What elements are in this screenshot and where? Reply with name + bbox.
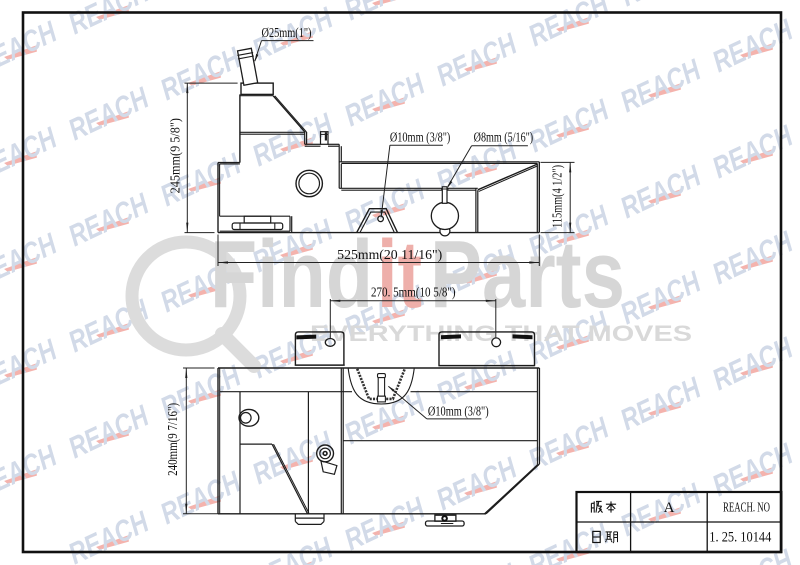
svg-text:245mm(9 5/8"): 245mm(9 5/8") bbox=[168, 118, 183, 193]
svg-text:Ø25mm(1"): Ø25mm(1") bbox=[262, 25, 312, 40]
svg-text:Find: Find bbox=[210, 221, 373, 328]
svg-text:it: it bbox=[377, 221, 422, 328]
svg-text:REACH. NO: REACH. NO bbox=[723, 500, 770, 515]
svg-text:115mm(4 1/2"): 115mm(4 1/2") bbox=[549, 165, 564, 228]
svg-text:270. 5mm(10 5/8"): 270. 5mm(10 5/8") bbox=[371, 284, 456, 299]
svg-text:Ø10mm (3/8"): Ø10mm (3/8") bbox=[428, 404, 489, 419]
svg-text:525mm(20 11/16"): 525mm(20 11/16") bbox=[337, 247, 442, 262]
svg-text:Ø10mm (3/8"): Ø10mm (3/8") bbox=[390, 130, 451, 145]
svg-text:1. 25. 10144: 1. 25. 10144 bbox=[709, 530, 771, 546]
svg-text:Parts: Parts bbox=[430, 221, 625, 328]
svg-text:240mm(9 7/16"): 240mm(9 7/16") bbox=[165, 403, 180, 476]
svg-text:A: A bbox=[664, 500, 675, 516]
svg-text:Ø8mm (5/16"): Ø8mm (5/16") bbox=[474, 130, 534, 145]
